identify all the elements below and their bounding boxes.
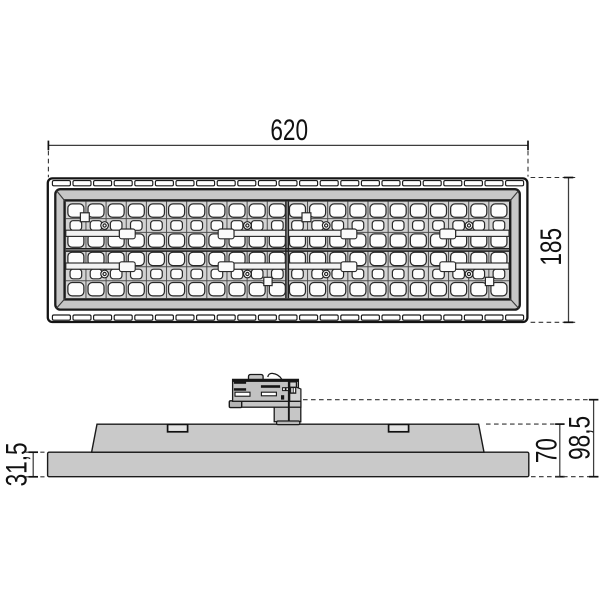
svg-text:185: 185	[534, 228, 568, 266]
svg-text:31,5: 31,5	[0, 442, 33, 486]
svg-text:98,5: 98,5	[562, 416, 596, 460]
svg-text:620: 620	[270, 113, 308, 147]
svg-text:70: 70	[529, 438, 563, 463]
